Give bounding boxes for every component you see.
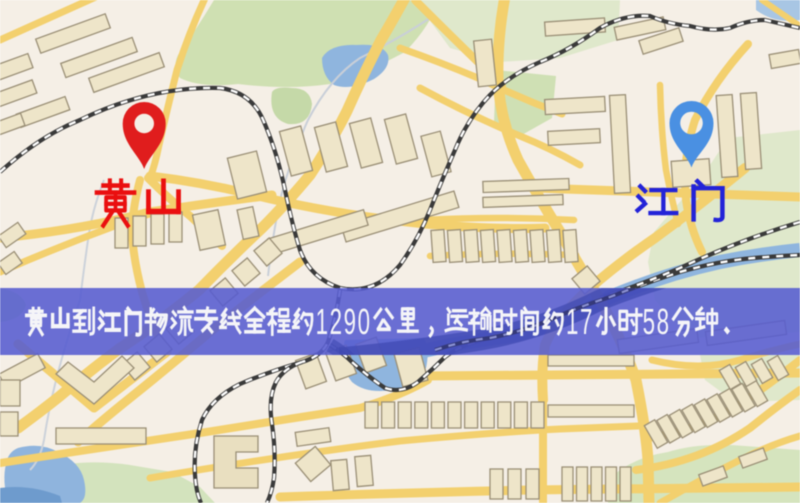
svg-text:2: 2 bbox=[330, 303, 342, 343]
svg-text:8: 8 bbox=[657, 303, 669, 343]
svg-text:9: 9 bbox=[344, 303, 356, 343]
svg-text:1: 1 bbox=[316, 303, 328, 343]
svg-text:5: 5 bbox=[643, 303, 655, 343]
svg-text:1: 1 bbox=[566, 303, 578, 343]
svg-text:0: 0 bbox=[358, 303, 370, 343]
svg-text:7: 7 bbox=[580, 303, 592, 343]
